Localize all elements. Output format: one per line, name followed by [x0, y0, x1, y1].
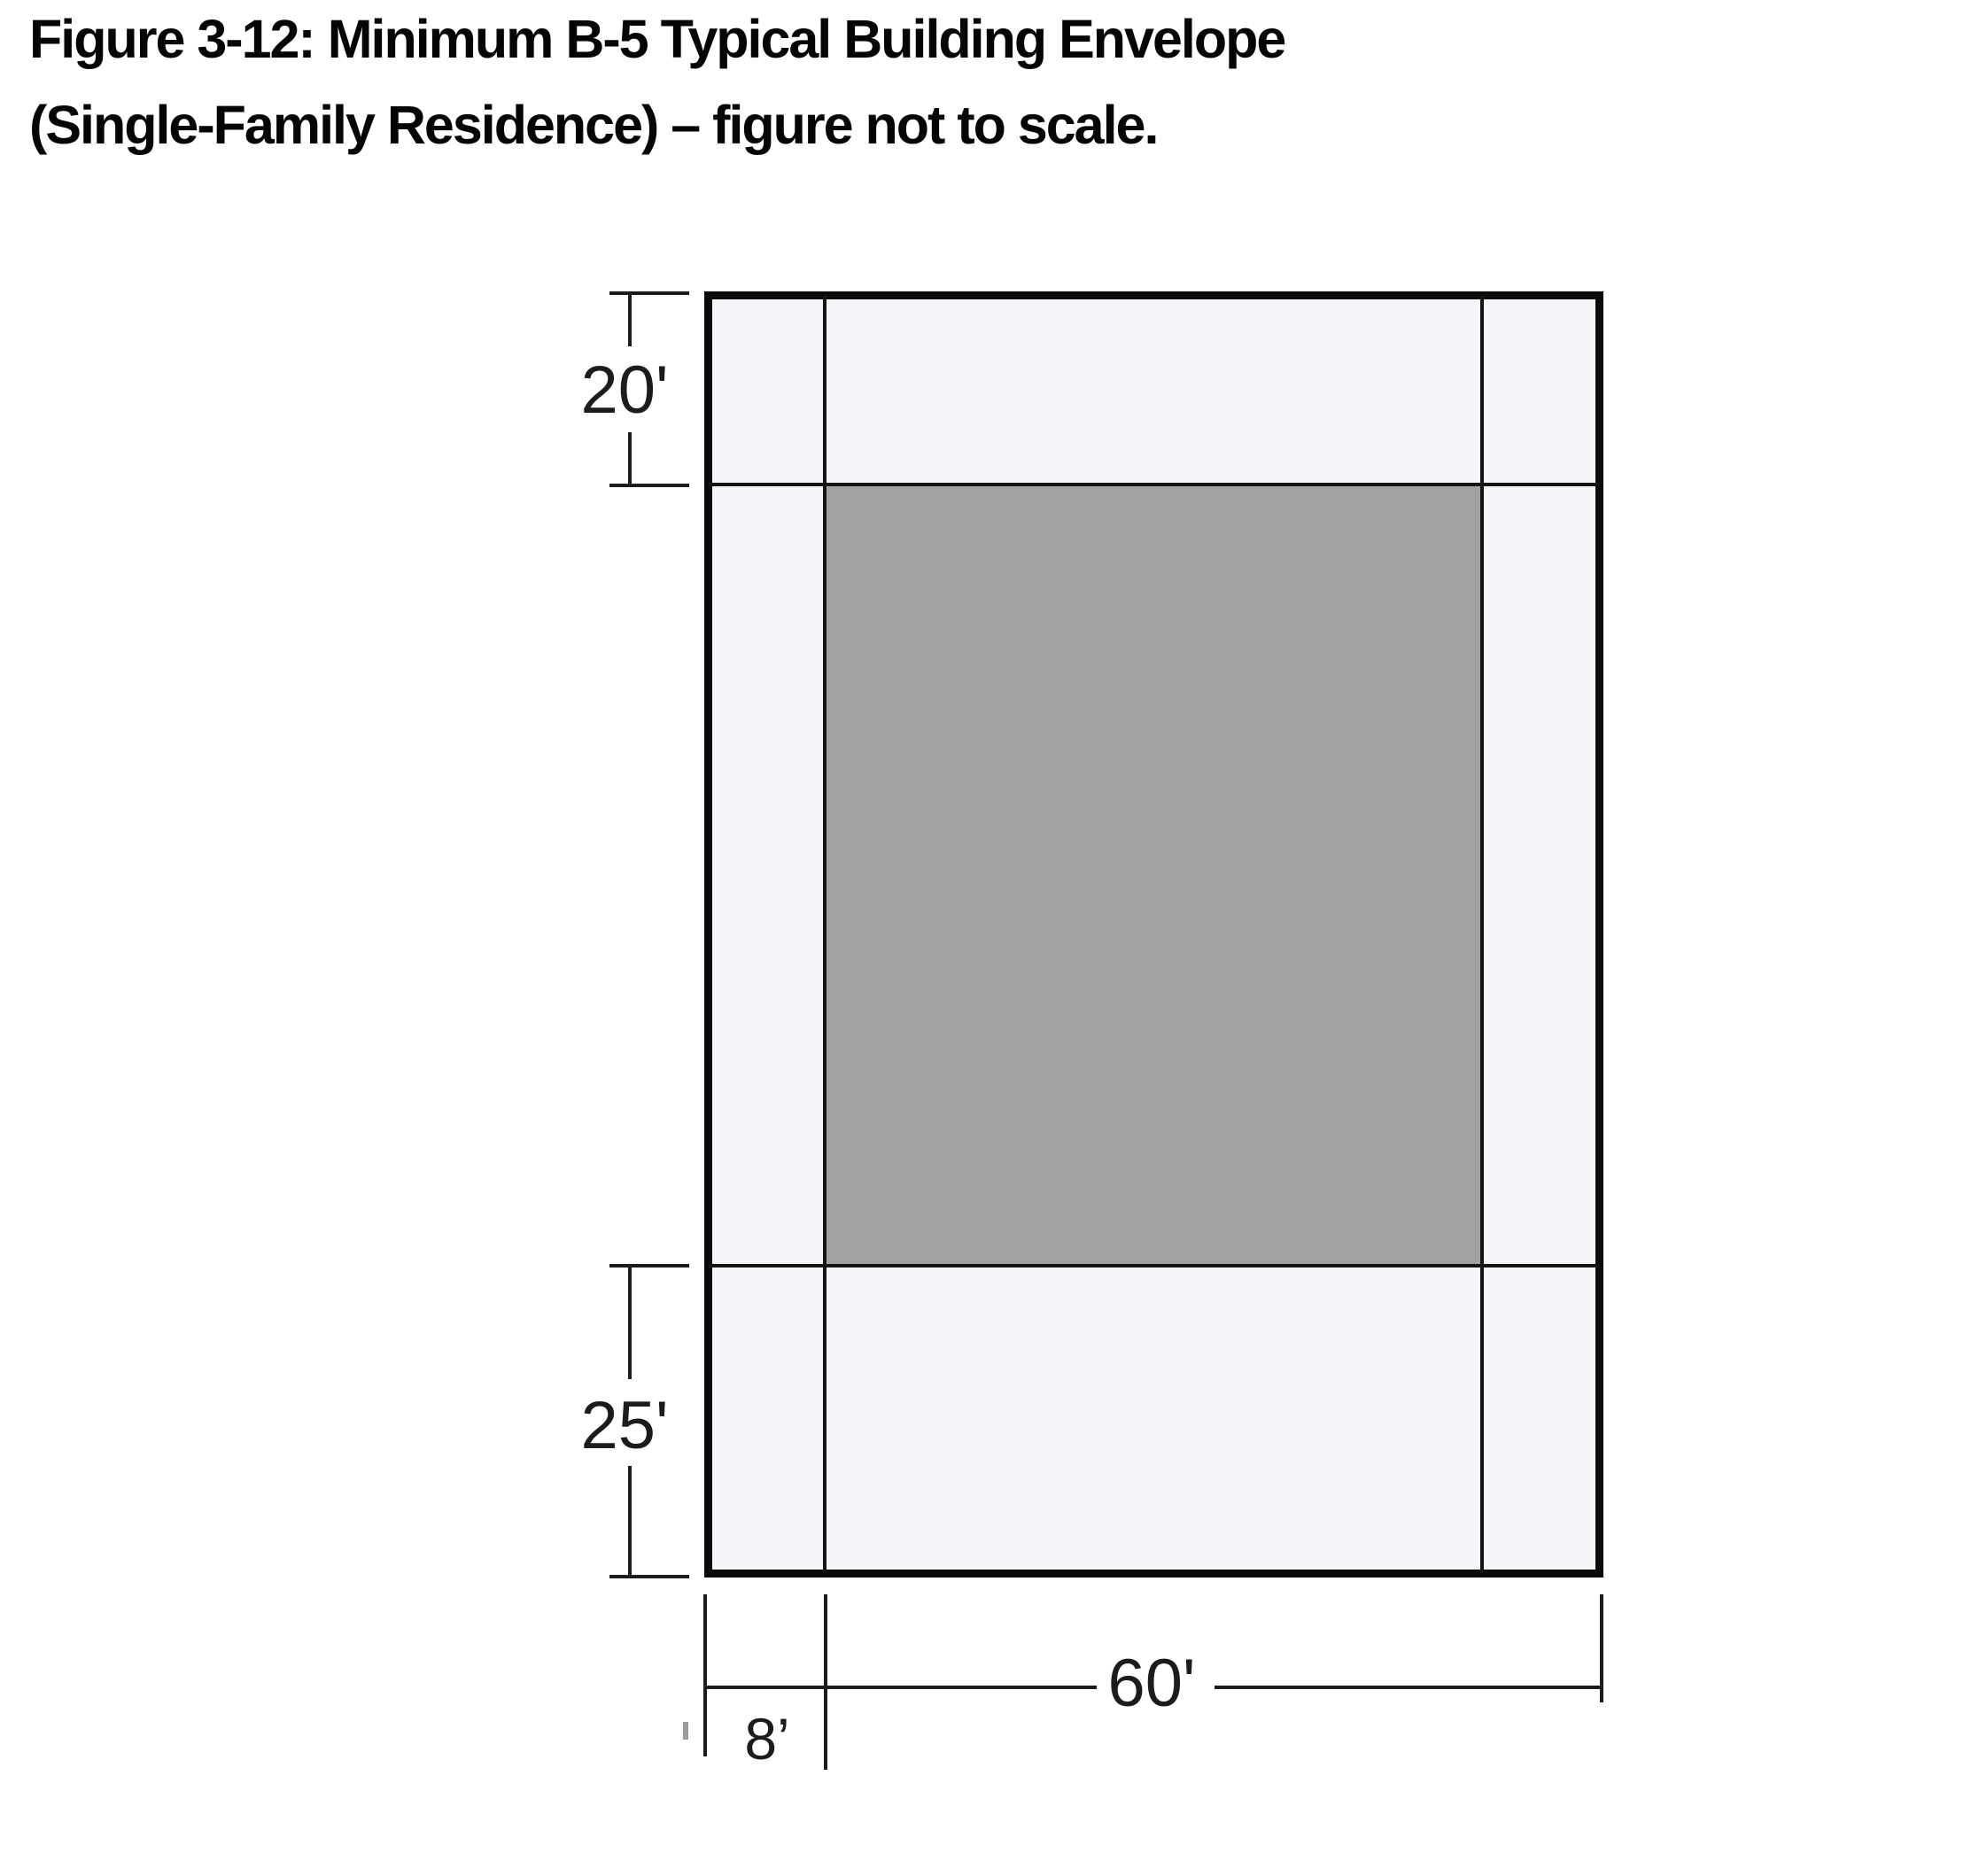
rear-dimension-bottom-tick — [609, 1575, 689, 1578]
figure-title-line2: (Single-Family Residence) – figure not t… — [29, 82, 1535, 168]
width-dimension-line-right-segment — [1215, 1686, 1603, 1689]
side-setback-dimension-label: 8’ — [723, 1709, 811, 1768]
figure-page: Figure 3-12: Minimum B-5 Typical Buildin… — [0, 0, 1979, 1876]
right-side-setback-line — [1480, 296, 1484, 1573]
rear-dimension-top-tick — [609, 1264, 689, 1267]
side-dimension-right-extension-line — [824, 1594, 827, 1770]
front-dimension-bottom-tick — [609, 484, 689, 487]
front-dimension-line-upper — [628, 291, 632, 346]
front-setback-line — [709, 483, 1599, 486]
lot-width-dimension-label: 60' — [1090, 1650, 1214, 1717]
width-dimension-line-left-segment — [703, 1686, 1097, 1689]
scan-artifact-mark — [683, 1722, 688, 1740]
front-dimension-line-lower — [628, 432, 632, 487]
rear-setback-dimension-label: 25' — [571, 1392, 678, 1460]
side-dimension-left-extension-line — [703, 1594, 707, 1756]
rear-dimension-line-upper — [628, 1264, 632, 1379]
front-dimension-top-tick — [609, 291, 689, 295]
rear-dimension-line-lower — [628, 1466, 632, 1578]
left-side-setback-line — [823, 296, 827, 1573]
figure-title-line1: Figure 3-12: Minimum B-5 Typical Buildin… — [29, 0, 1535, 82]
rear-setback-line — [709, 1264, 1599, 1267]
front-setback-dimension-label: 20' — [571, 357, 678, 424]
building-envelope-area — [825, 485, 1482, 1266]
figure-title: Figure 3-12: Minimum B-5 Typical Buildin… — [29, 0, 1535, 168]
